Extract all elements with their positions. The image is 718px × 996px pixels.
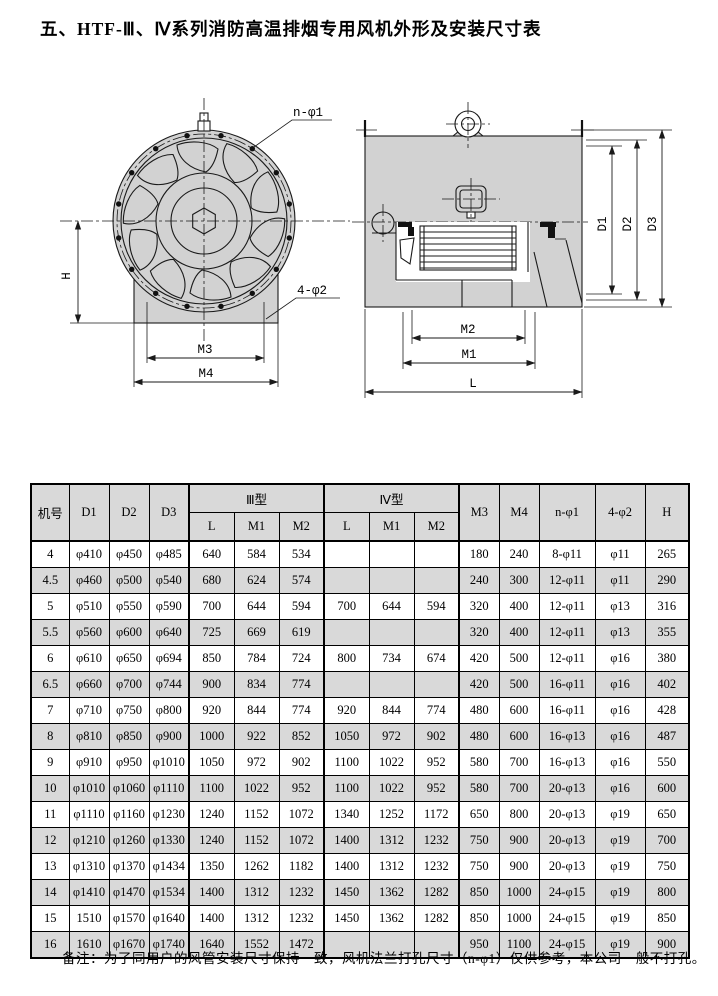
table-cell: [414, 672, 459, 698]
table-cell: φ1110: [69, 802, 109, 828]
table-cell: 12-φ11: [539, 620, 595, 646]
table-cell: 700: [645, 828, 689, 854]
table-cell: 420: [459, 646, 499, 672]
table-row: 10φ1010φ1060φ111011001022952110010229525…: [31, 776, 689, 802]
table-cell: 1312: [234, 880, 279, 906]
table-cell: φ13: [595, 620, 645, 646]
table-cell: 600: [499, 724, 539, 750]
table-cell: φ460: [69, 568, 109, 594]
table-cell: φ1310: [69, 854, 109, 880]
table-cell: 1172: [414, 802, 459, 828]
table-cell: 900: [499, 828, 539, 854]
table-cell: 750: [459, 854, 499, 880]
table-cell: 1340: [324, 802, 369, 828]
table-cell: 1262: [234, 854, 279, 880]
table-cell: 1232: [279, 880, 324, 906]
table-cell: 900: [189, 672, 234, 698]
dim-label-d2: D2: [621, 216, 635, 231]
table-cell: φ19: [595, 880, 645, 906]
table-cell: φ560: [69, 620, 109, 646]
table-cell: 1072: [279, 828, 324, 854]
table-cell: 580: [459, 750, 499, 776]
table-cell: 584: [234, 541, 279, 568]
table-cell: 1400: [324, 854, 369, 880]
col-header-d2: D2: [109, 484, 149, 541]
table-cell: 240: [459, 568, 499, 594]
table-cell: 834: [234, 672, 279, 698]
table-cell: 1000: [499, 906, 539, 932]
table-row: 4φ410φ450φ4856405845341802408-φ11φ11265: [31, 541, 689, 568]
table-cell: 355: [645, 620, 689, 646]
table-cell: 16-φ13: [539, 750, 595, 776]
col-header-n-phi1: n-φ1: [539, 484, 595, 541]
table-cell: 750: [645, 854, 689, 880]
table-cell: φ16: [595, 776, 645, 802]
table-cell: 640: [189, 541, 234, 568]
table-cell: φ610: [69, 646, 109, 672]
table-cell: φ1260: [109, 828, 149, 854]
table-cell: 1100: [324, 776, 369, 802]
table-cell: 952: [279, 776, 324, 802]
table-cell: φ1470: [109, 880, 149, 906]
table-cell: 850: [459, 906, 499, 932]
table-cell: 16-φ13: [539, 724, 595, 750]
table-cell: φ700: [109, 672, 149, 698]
table-cell: 1152: [234, 828, 279, 854]
table-cell: φ810: [69, 724, 109, 750]
spec-table-wrap: 机号 D1 D2 D3 Ⅲ型 Ⅳ型 M3 M4 n-φ1 4-φ2 H L M1…: [30, 483, 690, 959]
table-cell: [414, 541, 459, 568]
table-cell: 644: [369, 594, 414, 620]
dim-label-m1: M1: [461, 348, 476, 362]
table-cell: φ16: [595, 724, 645, 750]
table-cell: 1182: [279, 854, 324, 880]
table-cell: 972: [369, 724, 414, 750]
table-row: 5.5φ560φ600φ64072566961932040012-φ11φ133…: [31, 620, 689, 646]
table-cell: 12-φ11: [539, 568, 595, 594]
col-header-h: H: [645, 484, 689, 541]
table-row: 151510φ1570φ1640140013121232145013621282…: [31, 906, 689, 932]
table-row: 7φ710φ750φ80092084477492084477448060016-…: [31, 698, 689, 724]
table-cell: 700: [499, 750, 539, 776]
table-cell: φ590: [149, 594, 189, 620]
table-cell: φ450: [109, 541, 149, 568]
table-cell: φ640: [149, 620, 189, 646]
table-cell: 902: [414, 724, 459, 750]
table-cell: 12-φ11: [539, 646, 595, 672]
table-cell: 320: [459, 594, 499, 620]
table-cell: 8-φ11: [539, 541, 595, 568]
table-cell: φ800: [149, 698, 189, 724]
table-cell: 6.5: [31, 672, 69, 698]
table-cell: 316: [645, 594, 689, 620]
table-cell: [324, 568, 369, 594]
table-cell: φ850: [109, 724, 149, 750]
table-cell: 10: [31, 776, 69, 802]
col-header-d3: D3: [149, 484, 189, 541]
table-cell: 20-φ13: [539, 802, 595, 828]
table-cell: 16-φ11: [539, 698, 595, 724]
table-cell: 400: [499, 594, 539, 620]
table-cell: 1050: [189, 750, 234, 776]
table-cell: φ910: [69, 750, 109, 776]
table-cell: 4: [31, 541, 69, 568]
dim-label-d1: D1: [596, 216, 610, 231]
table-cell: φ1160: [109, 802, 149, 828]
table-cell: 725: [189, 620, 234, 646]
table-cell: 844: [234, 698, 279, 724]
dim-label-d3: D3: [646, 216, 660, 231]
col-header-m1-3: M1: [234, 513, 279, 542]
table-cell: 550: [645, 750, 689, 776]
motor: [420, 226, 516, 270]
table-cell: 1050: [324, 724, 369, 750]
table-cell: 15: [31, 906, 69, 932]
col-header-m4: M4: [499, 484, 539, 541]
table-cell: 428: [645, 698, 689, 724]
col-header-machine: 机号: [31, 484, 69, 541]
table-cell: φ1434: [149, 854, 189, 880]
dim-label-m2: M2: [460, 323, 475, 337]
table-cell: φ485: [149, 541, 189, 568]
table-cell: 320: [459, 620, 499, 646]
table-cell: φ1640: [149, 906, 189, 932]
table-cell: φ650: [109, 646, 149, 672]
table-cell: 5.5: [31, 620, 69, 646]
table-cell: 300: [499, 568, 539, 594]
table-cell: 800: [645, 880, 689, 906]
table-cell: [324, 620, 369, 646]
table-cell: 650: [459, 802, 499, 828]
table-cell: 1282: [414, 906, 459, 932]
table-cell: 800: [324, 646, 369, 672]
table-cell: φ1010: [149, 750, 189, 776]
spec-table-body: 4φ410φ450φ4856405845341802408-φ11φ112654…: [31, 541, 689, 958]
dim-label-h: H: [60, 272, 74, 280]
table-cell: φ1060: [109, 776, 149, 802]
table-cell: 1232: [414, 854, 459, 880]
table-cell: 1000: [189, 724, 234, 750]
col-header-d1: D1: [69, 484, 109, 541]
dim-label-l: L: [469, 377, 477, 391]
table-cell: 500: [499, 646, 539, 672]
table-cell: φ11: [595, 541, 645, 568]
table-cell: 1282: [414, 880, 459, 906]
col-header-m1-4: M1: [369, 513, 414, 542]
table-cell: 1362: [369, 880, 414, 906]
table-cell: 1312: [234, 906, 279, 932]
table-cell: 600: [499, 698, 539, 724]
table-cell: 1252: [369, 802, 414, 828]
table-cell: 952: [414, 776, 459, 802]
table-cell: 700: [324, 594, 369, 620]
col-header-4-phi2: 4-φ2: [595, 484, 645, 541]
table-row: 6.5φ660φ700φ74490083477442050016-φ11φ164…: [31, 672, 689, 698]
col-header-l4: L: [324, 513, 369, 542]
table-cell: [324, 672, 369, 698]
table-row: 14φ1410φ1470φ153414001312123214501362128…: [31, 880, 689, 906]
table-cell: 852: [279, 724, 324, 750]
table-cell: 1100: [189, 776, 234, 802]
table-cell: φ13: [595, 594, 645, 620]
table-cell: 12: [31, 828, 69, 854]
table-cell: 784: [234, 646, 279, 672]
table-cell: 380: [645, 646, 689, 672]
table-row: 13φ1310φ1370φ143413501262118214001312123…: [31, 854, 689, 880]
table-cell: φ1230: [149, 802, 189, 828]
spec-table: 机号 D1 D2 D3 Ⅲ型 Ⅳ型 M3 M4 n-φ1 4-φ2 H L M1…: [30, 483, 690, 959]
col-header-m3: M3: [459, 484, 499, 541]
table-cell: 1400: [324, 828, 369, 854]
table-cell: 674: [414, 646, 459, 672]
table-cell: [369, 568, 414, 594]
table-cell: 9: [31, 750, 69, 776]
table-cell: 400: [499, 620, 539, 646]
table-row: 12φ1210φ1260φ133012401152107214001312123…: [31, 828, 689, 854]
table-cell: 6: [31, 646, 69, 672]
table-cell: 534: [279, 541, 324, 568]
table-cell: 724: [279, 646, 324, 672]
table-cell: φ1010: [69, 776, 109, 802]
table-cell: 774: [279, 672, 324, 698]
table-cell: 594: [279, 594, 324, 620]
table-cell: φ1370: [109, 854, 149, 880]
table-cell: 600: [645, 776, 689, 802]
table-cell: 1400: [189, 906, 234, 932]
table-cell: φ19: [595, 906, 645, 932]
table-cell: φ900: [149, 724, 189, 750]
table-cell: 20-φ13: [539, 828, 595, 854]
table-cell: 11: [31, 802, 69, 828]
side-view-drawing: M2 M1 L D1 D2 D3: [350, 90, 690, 400]
bolt-circle-label: n-φ1: [293, 106, 323, 120]
table-cell: 850: [459, 880, 499, 906]
front-view-drawing: H M3 M4 n-φ1 4-φ2: [40, 90, 360, 400]
table-cell: 1450: [324, 906, 369, 932]
table-cell: 920: [189, 698, 234, 724]
table-cell: 180: [459, 541, 499, 568]
col-header-m2-4: M2: [414, 513, 459, 542]
table-cell: 774: [414, 698, 459, 724]
page-title: 五、HTF-Ⅲ、Ⅳ系列消防高温排烟专用风机外形及安装尺寸表: [40, 16, 542, 41]
header-row-1: 机号 D1 D2 D3 Ⅲ型 Ⅳ型 M3 M4 n-φ1 4-φ2 H: [31, 484, 689, 513]
table-cell: 844: [369, 698, 414, 724]
table-cell: [324, 541, 369, 568]
table-cell: φ16: [595, 672, 645, 698]
table-cell: φ1110: [149, 776, 189, 802]
table-cell: 1022: [234, 776, 279, 802]
table-cell: 1350: [189, 854, 234, 880]
table-cell: 12-φ11: [539, 594, 595, 620]
table-cell: φ19: [595, 802, 645, 828]
table-cell: φ410: [69, 541, 109, 568]
document-page: 五、HTF-Ⅲ、Ⅳ系列消防高温排烟专用风机外形及安装尺寸表 H: [0, 0, 718, 996]
table-cell: [414, 568, 459, 594]
table-cell: 1240: [189, 828, 234, 854]
table-cell: 902: [279, 750, 324, 776]
table-cell: 574: [279, 568, 324, 594]
col-header-l3: L: [189, 513, 234, 542]
table-cell: 1072: [279, 802, 324, 828]
table-cell: φ550: [109, 594, 149, 620]
table-cell: φ1570: [109, 906, 149, 932]
table-cell: 20-φ13: [539, 854, 595, 880]
table-cell: 700: [499, 776, 539, 802]
table-cell: 480: [459, 698, 499, 724]
table-cell: 1240: [189, 802, 234, 828]
group-header-type4: Ⅳ型: [324, 484, 459, 513]
table-cell: 920: [324, 698, 369, 724]
table-cell: 734: [369, 646, 414, 672]
table-cell: 290: [645, 568, 689, 594]
table-cell: 1232: [414, 828, 459, 854]
table-cell: φ750: [109, 698, 149, 724]
table-row: 5φ510φ550φ59070064459470064459432040012-…: [31, 594, 689, 620]
table-cell: 680: [189, 568, 234, 594]
table-cell: φ744: [149, 672, 189, 698]
table-cell: 420: [459, 672, 499, 698]
table-cell: 1362: [369, 906, 414, 932]
table-cell: 594: [414, 594, 459, 620]
table-cell: φ500: [109, 568, 149, 594]
table-cell: 8: [31, 724, 69, 750]
table-cell: 1152: [234, 802, 279, 828]
table-cell: φ950: [109, 750, 149, 776]
table-cell: 1100: [324, 750, 369, 776]
table-cell: 487: [645, 724, 689, 750]
table-cell: 650: [645, 802, 689, 828]
table-cell: 20-φ13: [539, 776, 595, 802]
table-cell: φ16: [595, 750, 645, 776]
table-cell: φ19: [595, 854, 645, 880]
table-cell: 1022: [369, 750, 414, 776]
group-header-type3: Ⅲ型: [189, 484, 324, 513]
table-cell: 480: [459, 724, 499, 750]
table-cell: 500: [499, 672, 539, 698]
table-cell: 1312: [369, 828, 414, 854]
table-cell: [369, 672, 414, 698]
table-cell: 644: [234, 594, 279, 620]
table-cell: 16-φ11: [539, 672, 595, 698]
table-cell: φ11: [595, 568, 645, 594]
col-header-m2-3: M2: [279, 513, 324, 542]
table-cell: φ16: [595, 698, 645, 724]
table-row: 8φ810φ850φ900100092285210509729024806001…: [31, 724, 689, 750]
table-cell: φ710: [69, 698, 109, 724]
table-cell: 850: [645, 906, 689, 932]
table-cell: 700: [189, 594, 234, 620]
table-cell: 5: [31, 594, 69, 620]
table-cell: φ1534: [149, 880, 189, 906]
table-cell: 952: [414, 750, 459, 776]
table-cell: 240: [499, 541, 539, 568]
table-cell: [414, 620, 459, 646]
table-cell: φ1330: [149, 828, 189, 854]
table-cell: φ510: [69, 594, 109, 620]
table-cell: 624: [234, 568, 279, 594]
table-cell: 972: [234, 750, 279, 776]
table-cell: 24-φ15: [539, 880, 595, 906]
table-cell: 1400: [189, 880, 234, 906]
table-cell: 580: [459, 776, 499, 802]
table-row: 6φ610φ650φ69485078472480073467442050012-…: [31, 646, 689, 672]
table-cell: φ1410: [69, 880, 109, 906]
table-cell: 900: [499, 854, 539, 880]
table-cell: φ1210: [69, 828, 109, 854]
table-cell: 1450: [324, 880, 369, 906]
table-cell: 1022: [369, 776, 414, 802]
table-row: 11φ1110φ1160φ123012401152107213401252117…: [31, 802, 689, 828]
dim-label-m3: M3: [197, 343, 212, 357]
table-cell: 619: [279, 620, 324, 646]
footnote: 备注：为了同用户的风管安装尺寸保持一致，风机法兰打孔尺寸（n-φ1）仅供参考，本…: [62, 947, 706, 967]
table-row: 9φ910φ950φ101010509729021100102295258070…: [31, 750, 689, 776]
table-cell: 850: [189, 646, 234, 672]
table-cell: φ16: [595, 646, 645, 672]
table-cell: [369, 541, 414, 568]
table-cell: 7: [31, 698, 69, 724]
table-cell: 14: [31, 880, 69, 906]
table-cell: 669: [234, 620, 279, 646]
dim-label-m4: M4: [198, 367, 213, 381]
table-cell: 1000: [499, 880, 539, 906]
table-row: 4.5φ460φ500φ54068062457424030012-φ11φ112…: [31, 568, 689, 594]
table-cell: φ660: [69, 672, 109, 698]
table-cell: 800: [499, 802, 539, 828]
table-cell: φ540: [149, 568, 189, 594]
table-cell: φ600: [109, 620, 149, 646]
table-cell: 24-φ15: [539, 906, 595, 932]
table-cell: 1312: [369, 854, 414, 880]
table-cell: 13: [31, 854, 69, 880]
table-cell: 1232: [279, 906, 324, 932]
table-cell: 1510: [69, 906, 109, 932]
table-cell: 922: [234, 724, 279, 750]
table-cell: 265: [645, 541, 689, 568]
base-holes-label: 4-φ2: [297, 284, 327, 298]
table-cell: 402: [645, 672, 689, 698]
table-cell: φ19: [595, 828, 645, 854]
table-cell: 774: [279, 698, 324, 724]
table-cell: [369, 620, 414, 646]
table-cell: 750: [459, 828, 499, 854]
table-cell: 4.5: [31, 568, 69, 594]
table-cell: φ694: [149, 646, 189, 672]
